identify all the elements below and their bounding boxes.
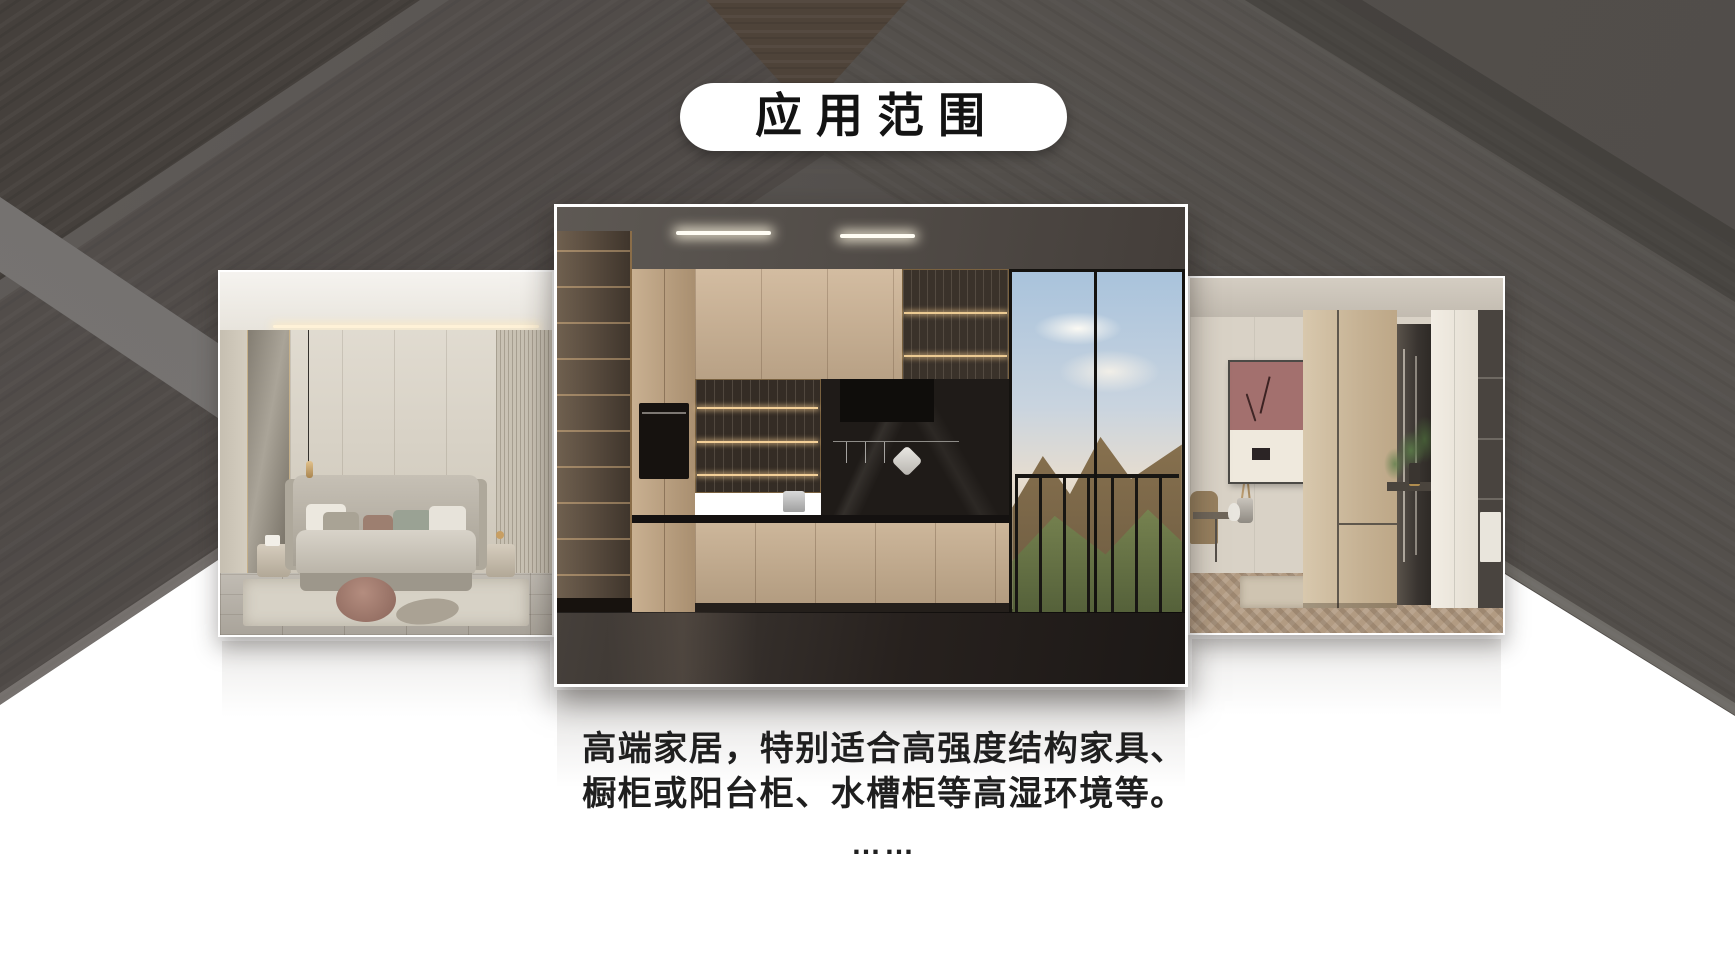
section-title-badge: 应用范围 <box>680 83 1067 151</box>
entryway-wardrobe-seam-horizontal <box>1337 523 1396 525</box>
entryway-side-table-leg <box>1215 519 1217 562</box>
kitchen-hanging-utensil <box>846 442 847 463</box>
kitchen-utensil-rail <box>833 441 959 442</box>
bedroom-left-wall <box>220 330 247 573</box>
entryway-dark-shelving-unit <box>1478 310 1503 608</box>
bedroom-table-lamp <box>496 531 504 539</box>
entryway-artwork-pink-field <box>1230 362 1304 431</box>
kitchen-ceiling-light-2 <box>840 234 915 238</box>
kitchen-glass-cabinet-left <box>557 231 632 613</box>
kitchen-base-cabinets <box>695 523 1009 603</box>
kitchen-upper-cabinets <box>695 269 902 379</box>
bedroom-scene <box>220 272 552 635</box>
kitchen-lit-shelf-2 <box>697 441 818 443</box>
kitchen-kettle <box>783 491 805 512</box>
entryway-dark-shelf-2 <box>1478 438 1503 440</box>
bedroom-pouf <box>336 577 396 622</box>
caption-line-2: 橱柜或阳台柜、水槽柜等高湿环境等。 <box>33 772 1735 817</box>
section-title: 应用范围 <box>748 83 999 149</box>
caption-line-1: 高端家居，特别适合高强度结构家具、 <box>33 727 1735 772</box>
kitchen-hanging-utensil-3 <box>884 442 885 463</box>
promo-banner: 应用范围 高端家居，特别适合高强度结构家具、 橱柜或阳台柜、水槽柜等高湿环境等。… <box>0 0 1735 976</box>
kitchen-floor-reflection <box>607 612 795 684</box>
bedroom-duvet <box>296 530 475 577</box>
kitchen-ceiling <box>557 207 1185 269</box>
entryway-wardrobe-shadow <box>1303 603 1397 608</box>
caption-ellipsis: …… <box>33 825 1735 865</box>
kitchen-countertop <box>632 515 1009 524</box>
kitchen-oven-handle <box>642 412 686 414</box>
bedroom-cove-light <box>273 325 539 328</box>
photo-entryway-scene <box>1188 276 1505 635</box>
entryway-figurine <box>1228 503 1241 521</box>
bedroom-nightstand-right <box>486 544 516 577</box>
caption: 高端家居，特别适合高强度结构家具、 橱柜或阳台柜、水槽柜等高湿环境等。 …… <box>33 727 1735 865</box>
kitchen-lit-shelf <box>697 407 818 409</box>
entryway-dark-shelf <box>1478 377 1503 379</box>
kitchen-window-frame-divider <box>1094 269 1097 612</box>
entryway-artwork-dark-rect <box>1252 448 1270 460</box>
bedroom-nightstand-decor <box>265 535 280 546</box>
kitchen-hanging-utensil-2 <box>865 442 866 463</box>
kitchen-ceiling-light <box>676 231 770 235</box>
kitchen-wine-shelf <box>904 312 1006 314</box>
bedroom-fluted-panel <box>496 330 552 573</box>
entryway-white-cabinet-seam <box>1454 310 1455 608</box>
kitchen-cabinet-plinth <box>557 598 632 612</box>
photo-kitchen-scene <box>554 204 1188 687</box>
bedroom-pendant-cord <box>308 330 309 464</box>
entryway-plant-vase <box>1409 463 1420 486</box>
bedroom-pendant-light <box>306 461 313 478</box>
entryway-artwork <box>1228 360 1306 484</box>
kitchen-toe-kick <box>695 603 1009 613</box>
entryway-white-drawer <box>1480 512 1502 562</box>
entryway-wardrobe <box>1303 310 1397 608</box>
entryway-dark-shelf-3 <box>1478 498 1503 500</box>
kitchen-wine-shelf-2 <box>904 355 1006 357</box>
entryway-scene <box>1190 278 1503 633</box>
kitchen-window-cloud-2 <box>1059 350 1159 393</box>
kitchen-balcony-railing-bars <box>1015 474 1178 612</box>
kitchen-range-hood <box>840 379 934 422</box>
kitchen-scene <box>557 207 1185 684</box>
kitchen-lit-shelf-3 <box>697 474 818 476</box>
entryway-wardrobe-seam-vertical <box>1337 310 1339 608</box>
photo-bedroom-scene <box>218 270 554 637</box>
entryway-plant-foliage-3 <box>1384 448 1406 480</box>
